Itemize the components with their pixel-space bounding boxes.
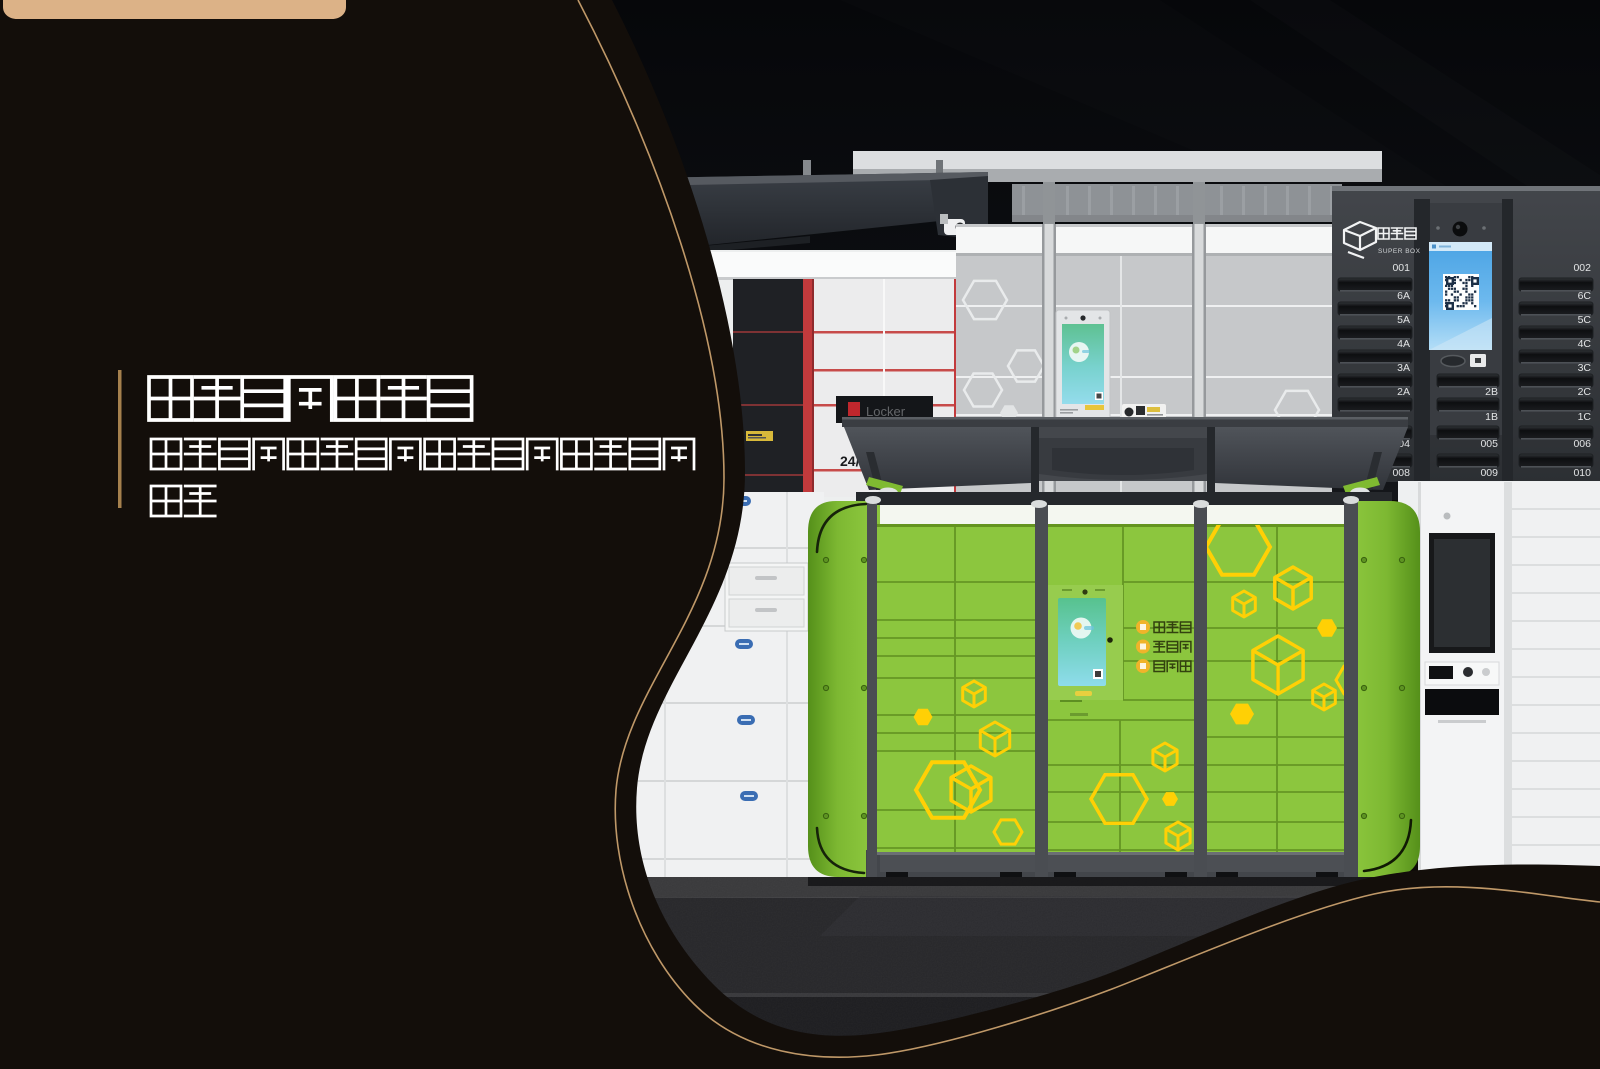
- svg-text:002: 002: [1573, 262, 1591, 274]
- svg-text:6A: 6A: [1397, 290, 1410, 302]
- svg-text:3A: 3A: [1397, 362, 1410, 374]
- svg-text:006: 006: [1573, 438, 1591, 450]
- svg-text:008: 008: [1392, 467, 1410, 479]
- svg-text:6C: 6C: [1578, 290, 1592, 302]
- svg-text:5A: 5A: [1397, 314, 1410, 326]
- svg-text:2B: 2B: [1485, 386, 1498, 398]
- svg-text:4C: 4C: [1578, 338, 1592, 350]
- svg-text:005: 005: [1480, 438, 1498, 450]
- svg-text:3C: 3C: [1578, 362, 1592, 374]
- svg-text:SUPER BOX: SUPER BOX: [1378, 248, 1421, 255]
- svg-text:2C: 2C: [1578, 386, 1592, 398]
- svg-text:4A: 4A: [1397, 338, 1410, 350]
- svg-text:1B: 1B: [1485, 411, 1498, 423]
- svg-text:5C: 5C: [1578, 314, 1592, 326]
- svg-text:010: 010: [1573, 467, 1591, 479]
- svg-text:Locker: Locker: [866, 404, 906, 419]
- svg-text:1C: 1C: [1578, 411, 1592, 423]
- svg-text:2A: 2A: [1397, 386, 1410, 398]
- svg-text:001: 001: [1392, 262, 1410, 274]
- svg-text:009: 009: [1480, 467, 1498, 479]
